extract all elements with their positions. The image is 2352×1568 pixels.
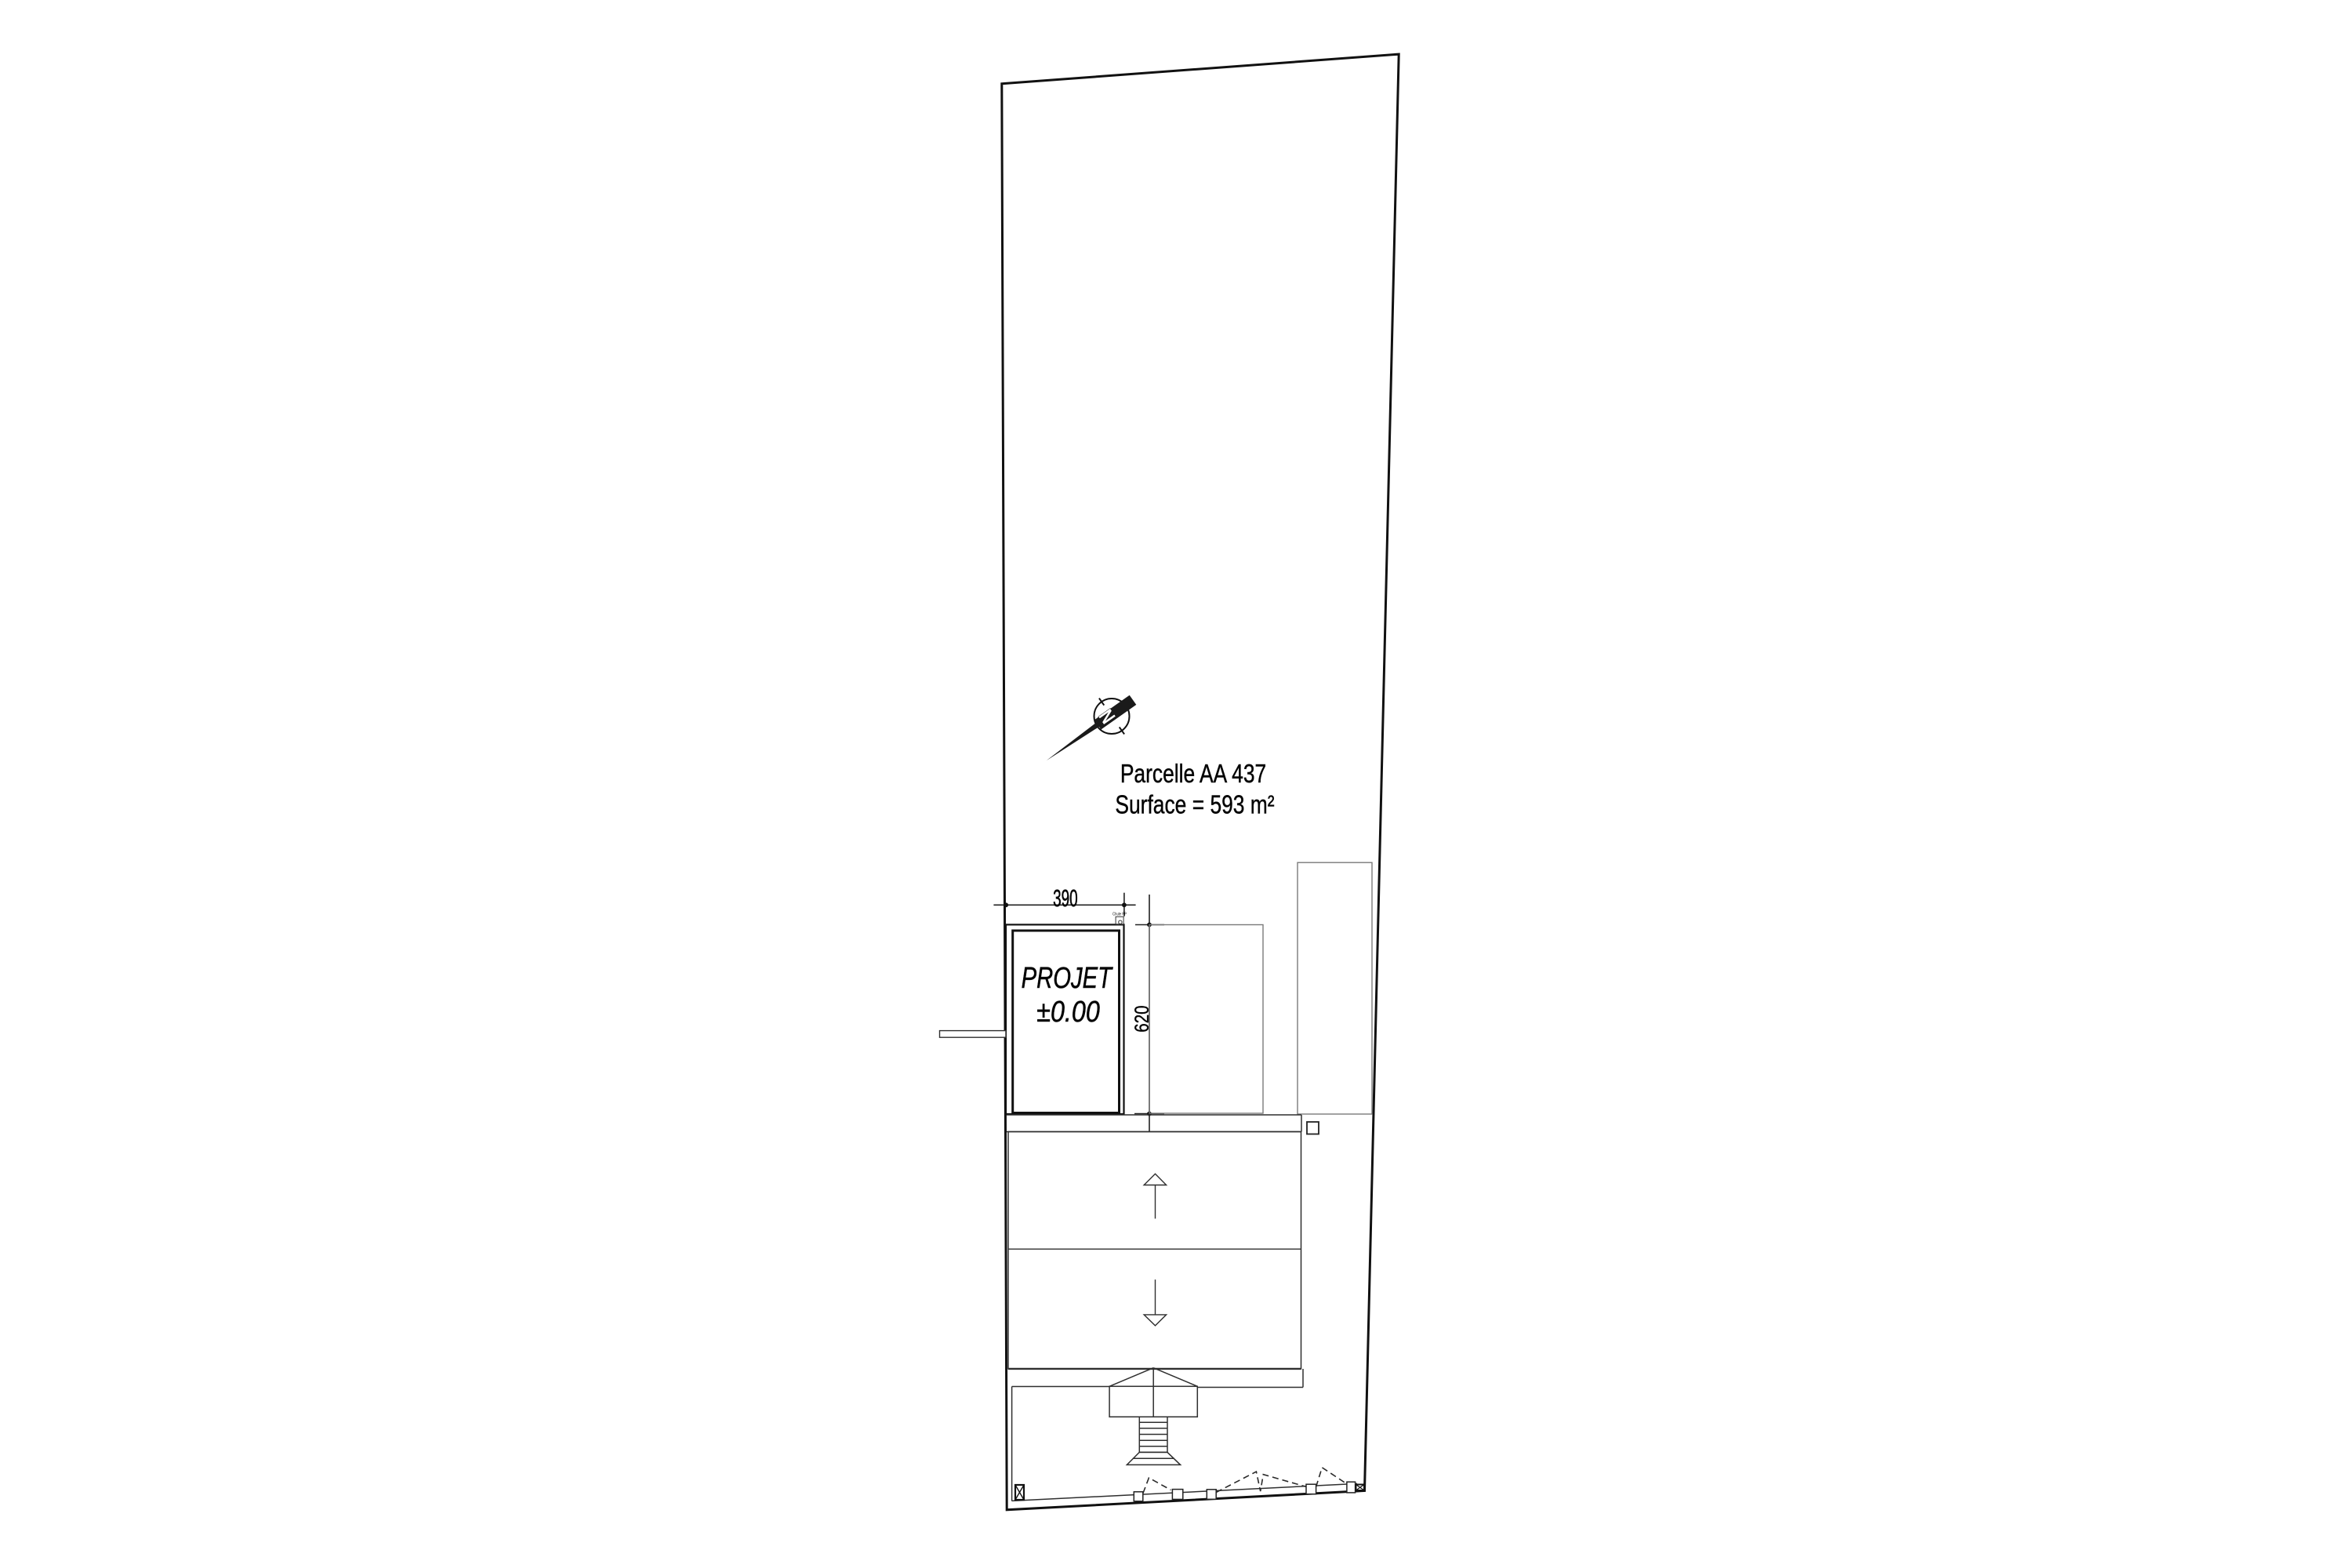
svg-text:Surface = 593 m²: Surface = 593 m²	[1115, 791, 1274, 819]
svg-text:390: 390	[1053, 886, 1078, 913]
svg-text:Chute PP: Chute PP	[1112, 912, 1127, 917]
svg-text:PROJET: PROJET	[1022, 961, 1113, 995]
svg-text:Parcelle AA 437: Parcelle AA 437	[1120, 760, 1266, 788]
svg-text:±0.00: ±0.00	[1036, 996, 1100, 1029]
